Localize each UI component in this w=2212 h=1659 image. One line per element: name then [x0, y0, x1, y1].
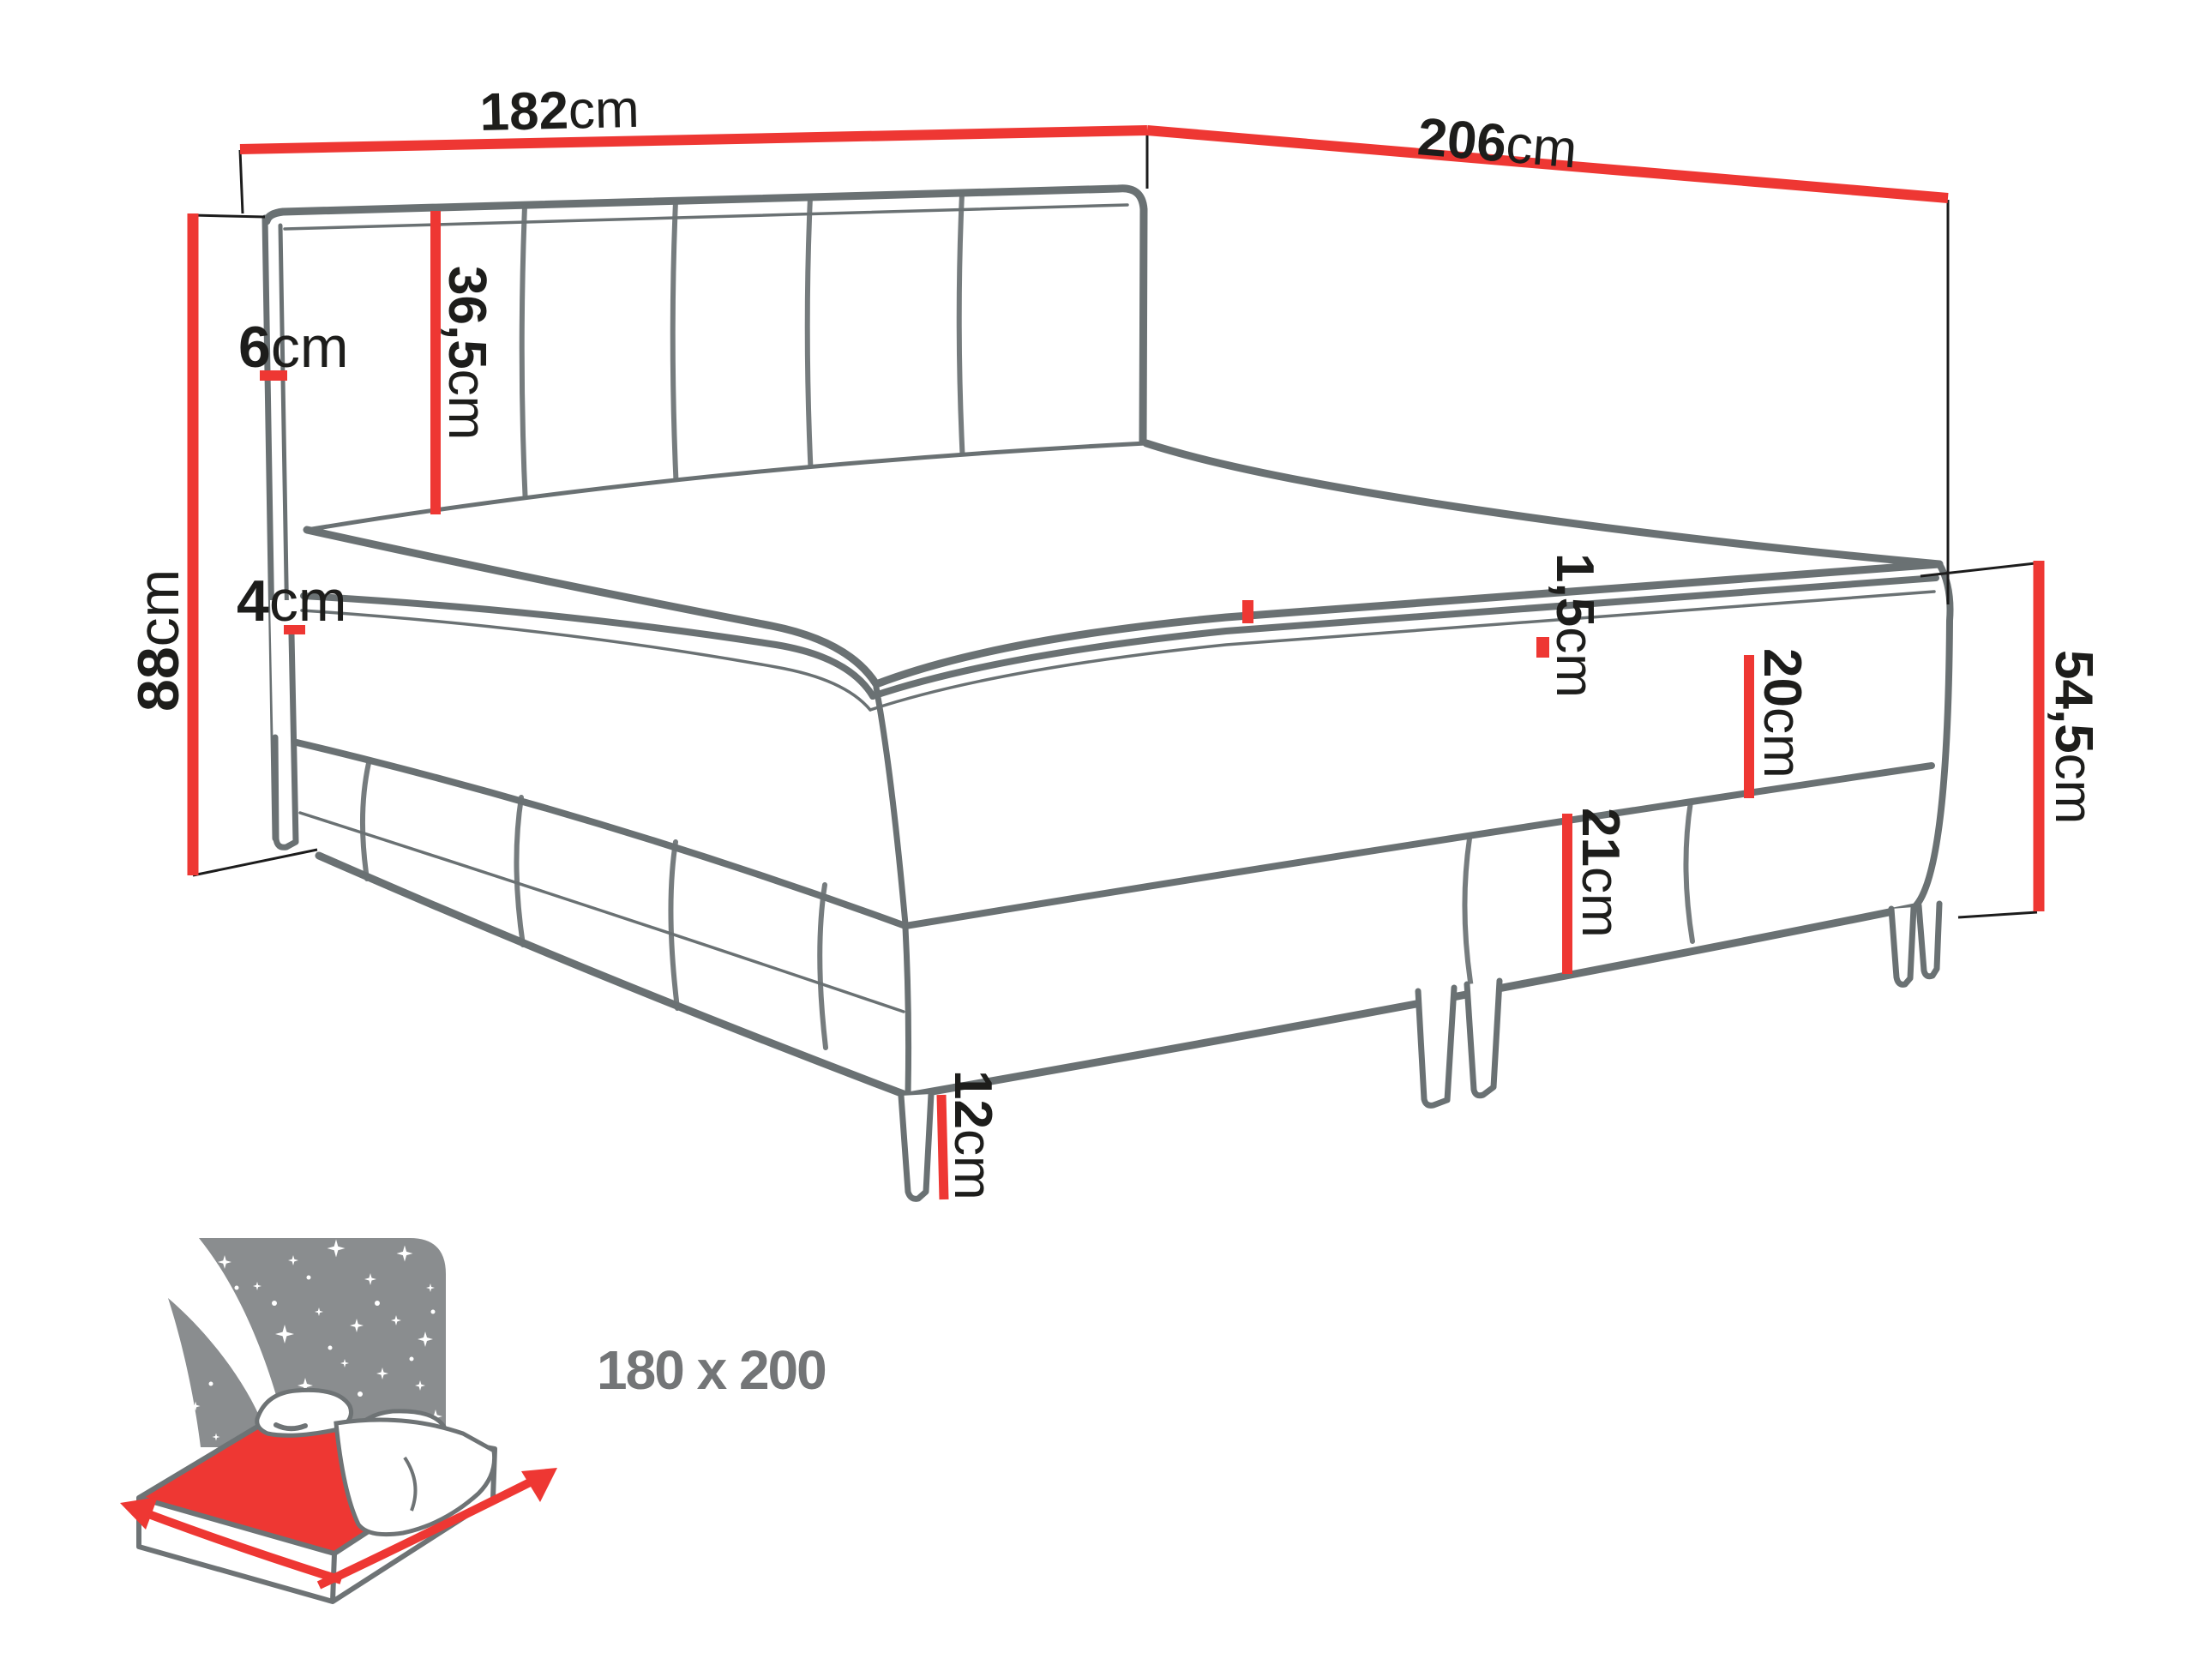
dim-side-height: 54,5cm [2039, 561, 2103, 911]
front-leg [901, 1094, 931, 1199]
dim-headboard-width: 182cm [240, 80, 1147, 149]
icon-bed [120, 1390, 557, 1602]
dim-headboard-thickness: 6cm [238, 315, 348, 381]
dim-side-height-label: 54,5cm [2044, 650, 2103, 824]
dim-headboard-width-line [240, 130, 1147, 149]
size-label: 180 x 200 [597, 1339, 826, 1401]
bed-dimension-diagram: 182cm 206cm 88cm 6cm 36,5cm 4cm 1,5cm 20… [0, 0, 2212, 1659]
mid-leg [1418, 988, 1454, 1105]
dim-topper-height-label: 4cm [237, 568, 346, 634]
dim-headboard-panel-label: 36,5cm [437, 266, 496, 440]
dim-headboard-thickness-label: 6cm [238, 315, 348, 380]
dim-mattress-height-label: 20cm [1752, 648, 1812, 778]
dim-leg-height-label: 12cm [943, 1070, 1002, 1200]
dim-bed-length: 206cm [1147, 107, 1948, 198]
headboard-leg [270, 600, 296, 848]
dim-headboard-height: 88cm [126, 213, 193, 875]
dim-box-height-label: 21cm [1571, 808, 1630, 938]
dim-bed-length-label: 206cm [1416, 107, 1579, 179]
mid-leg [1467, 981, 1500, 1096]
dim-headboard-height-label: 88cm [126, 569, 191, 712]
dim-mattress-height: 20cm [1749, 648, 1812, 798]
dim-headboard-width-label: 182cm [479, 80, 640, 142]
dim-topper-height: 4cm [237, 568, 346, 634]
dim-leg-height: 12cm [941, 1070, 1002, 1200]
right-leg [1919, 904, 1939, 977]
bed-size-icon: 180 x 200 [120, 1238, 826, 1602]
dim-topper-seam-tick [1242, 600, 1253, 623]
right-leg [1891, 907, 1914, 984]
bed-body [297, 443, 1951, 1096]
dim-topper-seam-label: 1,5cm [1545, 553, 1604, 698]
